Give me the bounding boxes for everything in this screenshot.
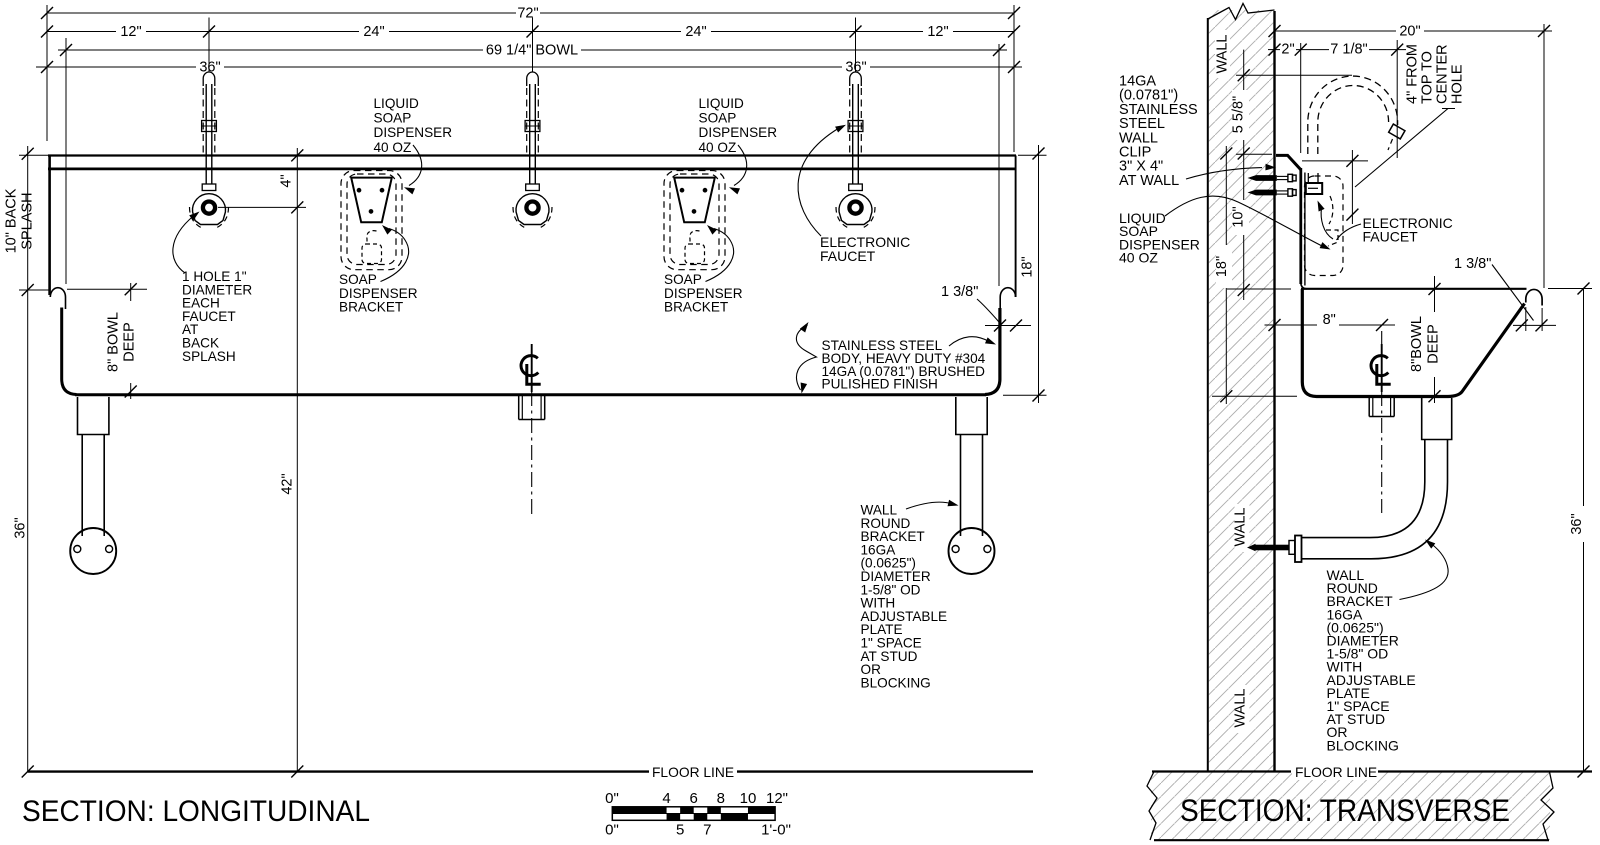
svg-text:7: 7 xyxy=(703,822,711,839)
svg-text:DISPENSER: DISPENSER xyxy=(699,125,778,140)
svg-text:FLOOR LINE: FLOOR LINE xyxy=(1295,765,1377,780)
svg-text:42": 42" xyxy=(280,473,296,494)
svg-text:SPLASH: SPLASH xyxy=(20,192,36,249)
svg-text:4: 4 xyxy=(662,790,670,807)
svg-text:LIQUID: LIQUID xyxy=(699,96,745,111)
svg-text:40 OZ: 40 OZ xyxy=(374,140,412,155)
svg-text:1 3/8": 1 3/8" xyxy=(941,284,978,300)
svg-text:10" BACK: 10" BACK xyxy=(4,188,20,253)
svg-text:40 OZ: 40 OZ xyxy=(1119,250,1158,266)
svg-text:20": 20" xyxy=(1399,24,1420,40)
svg-text:FAUCET: FAUCET xyxy=(1363,229,1419,245)
svg-text:5 5/8": 5 5/8" xyxy=(1231,96,1247,133)
svg-text:18": 18" xyxy=(1020,256,1036,277)
svg-text:0": 0" xyxy=(605,822,619,839)
svg-text:8: 8 xyxy=(717,790,725,807)
svg-text:LIQUID: LIQUID xyxy=(374,96,420,111)
svg-text:WALL: WALL xyxy=(1233,689,1249,728)
svg-text:7 1/8": 7 1/8" xyxy=(1330,42,1367,58)
svg-text:BRACKET: BRACKET xyxy=(339,300,403,315)
svg-text:SOAP: SOAP xyxy=(339,272,377,287)
svg-text:6: 6 xyxy=(690,790,698,807)
svg-text:36": 36" xyxy=(13,517,29,538)
svg-text:24": 24" xyxy=(685,24,706,40)
svg-text:40 OZ: 40 OZ xyxy=(699,140,737,155)
svg-text:DEEP: DEEP xyxy=(1426,324,1442,364)
svg-text:TOP TO: TOP TO xyxy=(1420,51,1436,104)
svg-text:DISPENSER: DISPENSER xyxy=(339,286,418,301)
svg-text:18": 18" xyxy=(1214,256,1230,277)
svg-text:72": 72" xyxy=(517,6,538,22)
svg-text:BLOCKING: BLOCKING xyxy=(1327,737,1399,753)
svg-text:HOLE: HOLE xyxy=(1450,64,1466,104)
svg-text:WALL: WALL xyxy=(1233,508,1249,547)
svg-text:SOAP: SOAP xyxy=(374,111,412,126)
svg-text:36": 36" xyxy=(1569,513,1585,534)
svg-text:1'-0": 1'-0" xyxy=(761,822,791,839)
svg-text:0": 0" xyxy=(605,790,619,807)
svg-text:FAUCET: FAUCET xyxy=(820,248,876,264)
svg-text:4": 4" xyxy=(279,174,295,187)
svg-text:BLOCKING: BLOCKING xyxy=(861,675,931,690)
svg-text:10": 10" xyxy=(1231,206,1247,227)
svg-text:12": 12" xyxy=(766,790,788,807)
svg-text:1 3/8": 1 3/8" xyxy=(1454,256,1491,272)
svg-text:DISPENSER: DISPENSER xyxy=(374,125,453,140)
svg-text:2": 2" xyxy=(1281,42,1294,58)
svg-text:4" FROM: 4" FROM xyxy=(1405,44,1421,104)
svg-text:SOAP: SOAP xyxy=(699,111,737,126)
svg-text:8"BOWL: 8"BOWL xyxy=(1409,316,1425,372)
svg-text:12": 12" xyxy=(120,24,141,40)
svg-text:WALL: WALL xyxy=(1215,35,1231,74)
svg-text:PULISHED FINISH: PULISHED FINISH xyxy=(822,377,938,392)
svg-text:12": 12" xyxy=(927,24,948,40)
svg-text:SECTION: TRANSVERSE: SECTION: TRANSVERSE xyxy=(1180,792,1510,828)
svg-text:36": 36" xyxy=(199,60,220,76)
svg-text:FLOOR LINE: FLOOR LINE xyxy=(652,765,734,780)
svg-text:DISPENSER: DISPENSER xyxy=(664,286,743,301)
svg-text:SECTION: LONGITUDINAL: SECTION: LONGITUDINAL xyxy=(22,795,370,828)
svg-text:CENTER: CENTER xyxy=(1435,44,1451,104)
svg-text:DEEP: DEEP xyxy=(122,322,138,362)
svg-text:24": 24" xyxy=(363,24,384,40)
svg-text:8": 8" xyxy=(1323,312,1336,328)
svg-text:SOAP: SOAP xyxy=(664,272,702,287)
svg-text:BRACKET: BRACKET xyxy=(664,300,728,315)
svg-text:5: 5 xyxy=(676,822,684,839)
svg-text:SPLASH: SPLASH xyxy=(182,349,236,364)
svg-text:AT WALL: AT WALL xyxy=(1119,173,1179,189)
svg-text:8" BOWL: 8" BOWL xyxy=(106,312,122,372)
svg-text:10: 10 xyxy=(740,790,757,807)
